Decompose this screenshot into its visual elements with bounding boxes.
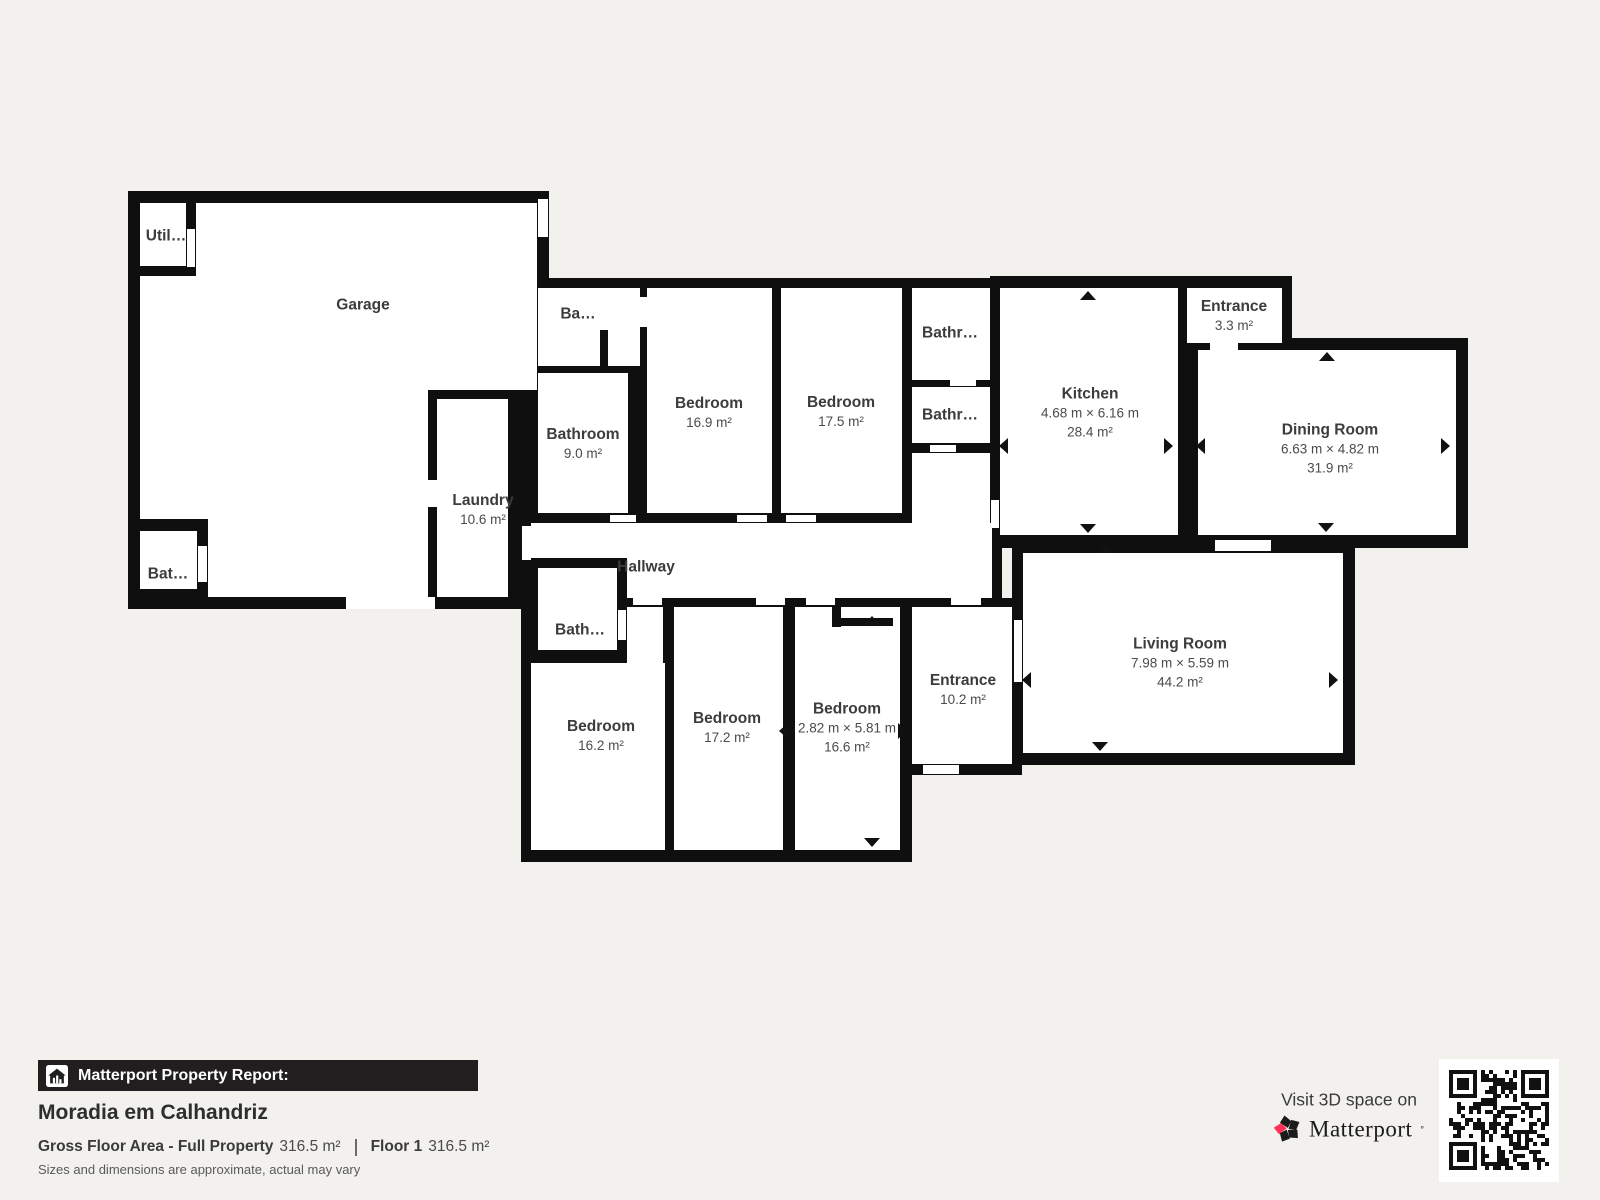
room-label-bathroom-hall: Bath… (555, 621, 605, 640)
room-label-bathroom-main: Bathroom9.0 m² (546, 425, 619, 463)
door-opening (991, 500, 999, 528)
door-direction-arrow-icon (864, 838, 880, 847)
floor-value: 316.5 m² (428, 1138, 489, 1156)
door-opening (346, 597, 435, 609)
room-label-kitchen: Kitchen4.68 m × 6.16 m28.4 m² (1041, 385, 1139, 442)
door-direction-arrow-icon (1318, 523, 1334, 532)
door-opening (198, 546, 207, 582)
room-label-bedroom-166: Bedroom2.82 m × 5.81 m16.6 m² (798, 700, 896, 757)
door-direction-arrow-icon (1164, 438, 1173, 454)
gross-area-value: 316.5 m² (279, 1138, 340, 1156)
room-label-bathroom-bottom: Bathr… (922, 406, 978, 425)
room-label-entrance-main: Entrance10.2 m² (930, 671, 996, 709)
door-opening (633, 598, 662, 605)
door-opening (756, 598, 785, 605)
door-direction-arrow-icon (1092, 742, 1108, 751)
room-label-utility: Util… (146, 227, 186, 246)
room-label-garage: Garage (336, 296, 389, 315)
gross-area-label: Gross Floor Area - Full Property (38, 1138, 273, 1156)
door-direction-arrow-icon (864, 616, 880, 625)
matterport-logo: Matterport° (1274, 1116, 1424, 1143)
property-title: Moradia em Calhandriz (38, 1101, 268, 1125)
door-direction-arrow-icon (1441, 438, 1450, 454)
bedroom-162-floor (531, 663, 665, 850)
house-report-icon (46, 1065, 68, 1087)
bathroom-small-top-floor (538, 288, 640, 366)
garage-floor (208, 519, 428, 597)
door-opening (923, 765, 959, 774)
matterport-pinwheel-icon (1274, 1116, 1301, 1143)
door-opening (610, 515, 636, 522)
door-direction-arrow-icon (898, 723, 907, 739)
report-bar-label: Matterport Property Report: (78, 1067, 289, 1085)
door-opening (640, 297, 648, 327)
room-label-entrance-top: Entrance3.3 m² (1201, 297, 1267, 335)
door-opening (1014, 620, 1022, 682)
door-opening (428, 480, 437, 507)
door-opening (737, 515, 767, 522)
room-label-hallway: Hallway (617, 558, 675, 577)
door-opening (1215, 540, 1271, 551)
door-direction-arrow-icon (1080, 524, 1096, 533)
door-opening (950, 379, 976, 386)
door-direction-arrow-icon (1319, 352, 1335, 361)
door-opening (951, 598, 981, 605)
door-direction-arrow-icon (1080, 291, 1096, 300)
visit-3d-text: Visit 3D space on (1281, 1090, 1417, 1111)
door-opening (930, 445, 956, 452)
door-opening (1210, 343, 1238, 350)
qr-code (1439, 1059, 1559, 1182)
room-label-living: Living Room7.98 m × 5.59 m44.2 m² (1131, 635, 1229, 692)
door-opening (538, 199, 548, 237)
room-label-bathroom-small-top: Ba… (560, 305, 595, 324)
room-label-bedroom-169: Bedroom16.9 m² (675, 394, 743, 432)
metrics-divider (355, 1139, 357, 1156)
door-direction-arrow-icon (1022, 672, 1031, 688)
report-bar: Matterport Property Report: (38, 1060, 478, 1091)
floor-plan (0, 0, 1600, 1200)
room-label-bathroom-garage: Bat… (148, 565, 188, 584)
room-label-bathroom-top: Bathr… (922, 324, 978, 343)
trademark-mark: ° (1420, 1124, 1424, 1134)
room-label-laundry: Laundry10.6 m² (452, 491, 513, 529)
bedroom-162-floor (627, 607, 663, 665)
door-opening (522, 526, 531, 560)
door-direction-arrow-icon (1329, 672, 1338, 688)
room-label-dining: Dining Room6.63 m × 4.82 m31.9 m² (1281, 421, 1379, 478)
door-opening (618, 610, 626, 640)
room-label-bedroom-175: Bedroom17.5 m² (807, 393, 875, 431)
matterport-wordmark: Matterport (1309, 1116, 1412, 1142)
door-opening (786, 515, 816, 522)
disclaimer-text: Sizes and dimensions are approximate, ac… (38, 1162, 360, 1177)
wall-stub (600, 330, 608, 366)
area-metrics: Gross Floor Area - Full Property 316.5 m… (38, 1138, 489, 1156)
door-direction-arrow-icon (1097, 544, 1113, 553)
floor-label: Floor 1 (371, 1138, 423, 1156)
door-direction-arrow-icon (1196, 438, 1205, 454)
door-direction-arrow-icon (999, 438, 1008, 454)
room-label-bedroom-162: Bedroom16.2 m² (567, 717, 635, 755)
room-label-bedroom-172: Bedroom17.2 m² (693, 709, 761, 747)
door-direction-arrow-icon (779, 723, 788, 739)
door-opening (806, 598, 835, 605)
door-opening (187, 229, 195, 267)
